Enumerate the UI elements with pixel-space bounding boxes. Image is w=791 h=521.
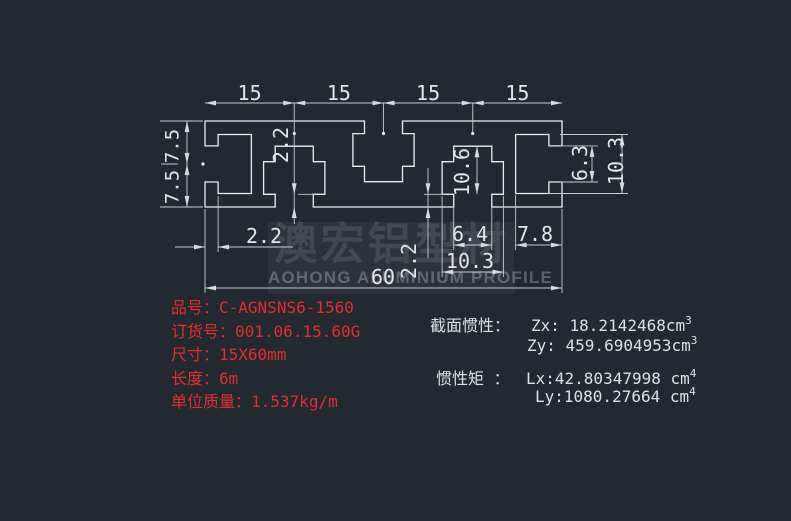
section-inertia-title: 截面惯性： [430, 312, 531, 336]
lx-superscript: 4 [690, 367, 697, 380]
length-value: 6m [219, 369, 238, 388]
cad-canvas: 澳宏铝型材 AOHONG ALUMINIUM PROFILE [0, 0, 791, 521]
dim-label-end-cavity: 10.3 [604, 137, 628, 185]
length-row: 长度：6m [171, 367, 360, 391]
unit-weight-value: 1.537kg/m [251, 392, 338, 411]
point-markers [201, 132, 474, 166]
dim-label-top-2: 15 [327, 81, 351, 105]
size-label: 尺寸： [171, 345, 219, 364]
zx-value: Zx: 18.2142468cm [531, 316, 685, 335]
order-number-value: 001.06.15.60G [235, 322, 360, 341]
moment-ly-row: Ly:1080.27664 cm4 [535, 387, 696, 406]
dim-label-left-2: 7.5 [162, 170, 184, 204]
moment-lx-row: 惯性矩 ：Lx:42.80347998 cm4 [436, 365, 696, 389]
zy-superscript: 3 [691, 334, 698, 347]
ly-value: Ly:1080.27664 cm [535, 387, 689, 406]
dim-label-top-3: 15 [416, 81, 440, 105]
dim-label-left-1: 7.5 [162, 129, 184, 163]
length-label: 长度： [171, 369, 219, 388]
size-row: 尺寸：15X60mm [171, 343, 360, 367]
order-number-label: 订货号： [171, 322, 235, 341]
dim-label-top-4: 15 [505, 81, 529, 105]
size-value: 15X60mm [219, 345, 286, 364]
dim-label-top-1: 15 [238, 81, 262, 105]
moment-title: 惯性矩 ： [436, 365, 526, 389]
dim-label-slot1-neck: 2.2 [269, 127, 293, 163]
dim-label-end-depth: 7.8 [517, 222, 553, 246]
dim-label-cavity-width: 10.3 [446, 249, 494, 273]
section-inertia-zy-row: Zy: 459.6904953cm3 [527, 336, 697, 355]
product-info: 品号：C-AGNSNS6-1560 订货号：001.06.15.60G 尺寸：1… [171, 296, 360, 414]
dim-label-slot-depth: 10.6 [450, 148, 474, 196]
zy-value: Zy: 459.6904953cm [527, 336, 691, 355]
order-number-row: 订货号：001.06.15.60G [171, 320, 360, 344]
product-number-row: 品号：C-AGNSNS6-1560 [171, 296, 360, 320]
section-inertia-zx-row: 截面惯性：Zx: 18.2142468cm3 [430, 312, 692, 336]
unit-weight-label: 单位质量： [171, 392, 251, 411]
product-number-value: C-AGNSNS6-1560 [219, 298, 354, 317]
unit-weight-row: 单位质量：1.537kg/m [171, 390, 360, 414]
zx-superscript: 3 [685, 314, 692, 327]
section-drawing: 15 15 15 15 7.5 7.5 2.2 2.2 60 2.2 10.6 … [0, 0, 791, 521]
dim-label-end-mouth: 6.3 [568, 145, 592, 181]
dim-label-overall: 60 [371, 265, 395, 289]
ly-superscript: 4 [689, 385, 696, 398]
dim-label-slot2-neck: 2.2 [397, 243, 421, 279]
product-number-label: 品号： [171, 298, 219, 317]
dimension-labels: 15 15 15 15 7.5 7.5 2.2 2.2 60 2.2 10.6 … [162, 81, 628, 289]
lx-value: Lx:42.80347998 cm [526, 369, 690, 388]
dim-label-wall: 2.2 [246, 224, 282, 248]
dim-label-mouth-width: 6.4 [452, 222, 488, 246]
